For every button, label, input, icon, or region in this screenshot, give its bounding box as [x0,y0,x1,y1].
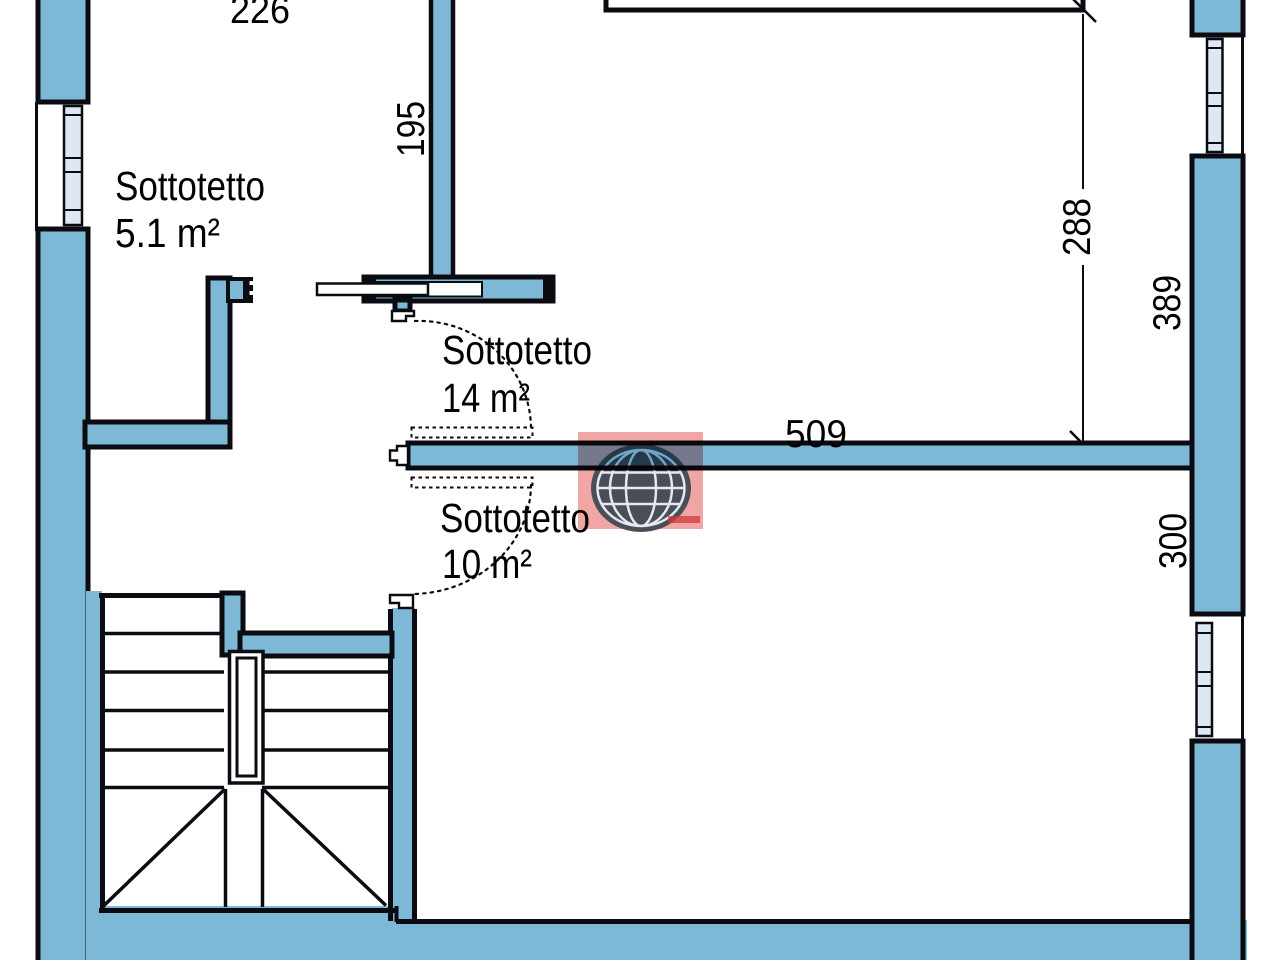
opening-dashed-lower [412,478,533,488]
dimension-300: 300 [1152,513,1195,569]
dimension-288: 288 [1056,198,1099,256]
entry-wall-195 [431,0,453,281]
dimension-226: 226 [230,0,290,32]
logo-fine-print [668,516,700,523]
room-label-sottotetto-14: Sottotetto [442,327,592,373]
dimension-389: 389 [1146,275,1189,331]
sliding-door-leaf [317,284,428,296]
room-area-5: 5.1 m² [115,210,220,256]
roof-window-strip [606,0,1083,10]
dimension-509: 509 [785,413,847,456]
floor-plan: Sottotetto 5.1 m² Sottotetto 14 m² Sotto… [0,0,1280,960]
room-label-sottotetto-5: Sottotetto [115,163,265,209]
dimension-195: 195 [390,101,433,157]
room-label-sottotetto-10: Sottotetto [440,495,590,541]
room-area-10: 10 m² [442,541,532,587]
stair-rail-inner [237,658,256,776]
opening-dashed-upper [412,428,533,438]
room-area-14: 14 m² [442,375,530,421]
watermark-logo [578,432,703,532]
